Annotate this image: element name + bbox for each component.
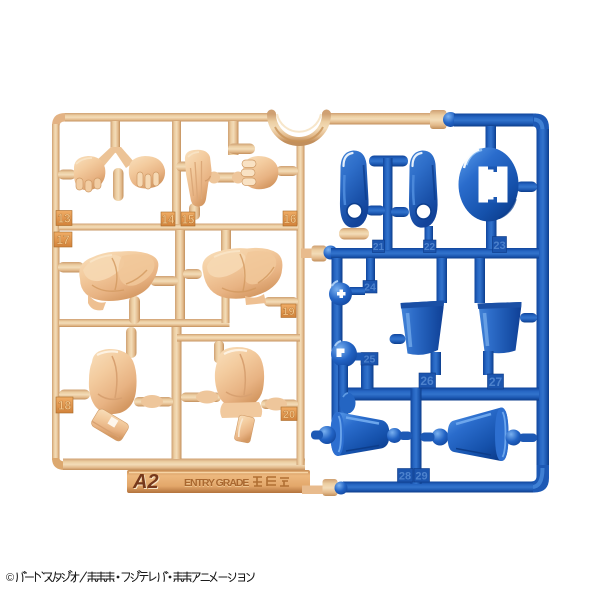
svg-text:13: 13	[57, 212, 71, 226]
svg-text:19: 19	[282, 306, 294, 318]
svg-text:A2: A2	[132, 471, 159, 493]
svg-text:25: 25	[364, 354, 376, 366]
svg-text:ENTRY GRADE: ENTRY GRADE	[184, 477, 249, 489]
svg-text:22: 22	[424, 242, 436, 253]
svg-text:15: 15	[182, 215, 195, 227]
svg-text:©: ©	[6, 572, 14, 584]
svg-text:16: 16	[284, 214, 297, 226]
svg-text:14: 14	[162, 215, 175, 227]
svg-text:29: 29	[415, 471, 427, 483]
svg-text:26: 26	[420, 374, 434, 388]
svg-text:20: 20	[283, 409, 295, 421]
svg-text:23: 23	[493, 240, 505, 252]
svg-text:28: 28	[399, 471, 411, 483]
svg-text:18: 18	[58, 399, 72, 413]
svg-text:24: 24	[364, 282, 376, 294]
svg-text:27: 27	[489, 375, 503, 389]
svg-text:17: 17	[56, 233, 70, 247]
svg-text:21: 21	[373, 242, 385, 253]
